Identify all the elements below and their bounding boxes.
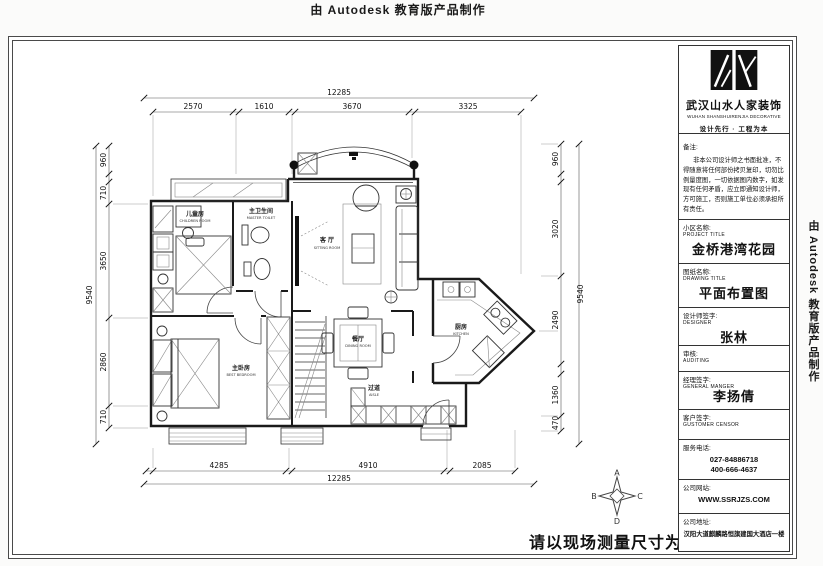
rug-icon [343,204,381,284]
compass-east-label: C [637,492,643,501]
compass-north-label: A [614,469,620,478]
balcony [290,147,419,179]
svg-text:2490: 2490 [551,310,560,329]
floor-plan: 12285 2570 1610 3670 3325 9540 960 71 [71,86,661,501]
company-slogan: 设计先行 · 工程为本 [683,123,785,133]
company-name: 武汉山水人家装饰 [683,97,785,113]
armchair-icon [353,185,379,211]
svg-text:710: 710 [99,186,108,201]
remarks-section: 备注: 非本公司设计师之书面批准，不得随意将任何部份拷贝复印，切勿比例量度图，一… [679,134,789,220]
svg-text:MASTER TOILET: MASTER TOILET [247,216,276,220]
door-kitchen [433,336,460,363]
compass-rose: A B C D [586,469,648,527]
chair-icon [348,307,368,318]
balcony-pillar-icon [290,161,299,170]
walls [151,179,534,426]
bathroom: 主卫生间 MASTER TOILET [242,207,281,317]
bay-window-top [171,179,286,201]
wardrobe-icon [153,340,172,406]
svg-text:3020: 3020 [551,219,560,238]
website-section: 公司网站: WWW.SSRJZS.COM [679,480,789,514]
sofa-icon [396,206,418,290]
closet-icon [267,317,290,419]
svg-text:3670: 3670 [342,102,361,111]
manager-label: 经理签字: [683,374,785,384]
side-table-lamp-icon [396,186,416,203]
sink-icon [244,259,270,280]
dimension-right: 960 3020 2490 1360 470 9540 [539,141,585,447]
plant-icon [349,152,358,160]
svg-text:12285: 12285 [327,88,351,97]
autodesk-stamp-right: 由 Autodesk 教育版产品制作 [805,220,821,450]
designer-value: 张林 [683,327,785,346]
svg-text:2085: 2085 [472,461,491,470]
svg-text:4910: 4910 [358,461,377,470]
compass-west-label: B [591,492,597,501]
toilet-icon [242,225,269,245]
wardrobe-strip-icon [153,206,173,312]
customer-section: 客户签字: GUSTOMER CENSOR [679,410,789,440]
drawing-label: 图纸名称: [683,266,785,276]
svg-text:DINING ROOM: DINING ROOM [345,344,370,348]
svg-text:470: 470 [551,416,560,431]
svg-text:4285: 4285 [209,461,228,470]
remarks-text: 非本公司设计师之书面批准，不得随意将任何部份拷贝复印，切勿比例量度图，一切依据图… [683,156,785,215]
coffee-table-icon [352,234,374,263]
auditing-label: 审核: [683,348,785,358]
customer-label: 客户签字: [683,412,785,422]
phone-number-2: 400-666-4637 [683,465,785,474]
dining-table-icon [334,319,382,367]
children-bed-icon [176,236,231,294]
customer-label-en: GUSTOMER CENSOR [683,422,785,428]
svg-text:CHILDREN ROOM: CHILDREN ROOM [180,219,211,223]
company-logo-icon [709,50,759,90]
stove-icon [484,301,517,334]
svg-text:3650: 3650 [99,251,108,270]
project-label: 小区名称: [683,222,785,232]
compass-south-label: D [614,517,620,526]
svg-text:960: 960 [551,152,560,167]
svg-text:BEST BEDROOM: BEST BEDROOM [226,373,255,377]
svg-text:客 厅: 客 厅 [319,236,334,244]
floor-lamp-icon [385,291,397,303]
phone-section: 服务电话: 027-84886718 400-666-4637 [679,440,789,480]
address-label: 公司地址: [683,516,785,526]
kitchen-sink-icon [443,282,475,297]
svg-text:1360: 1360 [551,385,560,404]
designer-label: 设计师签字: [683,310,785,320]
company-header: 武汉山水人家装饰 WUHAN SHANSHUIRENJIA DECORATIVE… [679,46,789,134]
nightstand-icon [157,326,167,336]
door-bathroom [255,291,281,317]
title-block: 武汉山水人家装饰 WUHAN SHANSHUIRENJIA DECORATIVE… [678,45,790,552]
balcony-pillar-icon [410,161,419,170]
master-bedroom: 主卧房 BEST BEDROOM [153,317,290,421]
dimension-bottom: 4285 4910 2085 12285 [141,430,537,487]
drawing-frame: 12285 2570 1610 3670 3325 9540 960 71 [8,36,797,559]
living-room: 客 厅 SITTING ROOM [295,185,418,303]
drawing-section: 图纸名称: DRAWING TITLE 平面布置图 [679,264,789,308]
shoe-cabinet-icon [351,388,456,424]
autodesk-stamp-top: 由 Autodesk 教育版产品制作 [0,1,796,18]
svg-text:3325: 3325 [458,102,477,111]
designer-section: 设计师签字: DESIGNER 张林 [679,308,789,346]
svg-text:710: 710 [99,410,108,425]
chair-icon [322,333,333,353]
svg-text:主卧房: 主卧房 [232,364,250,372]
master-bed-icon [171,339,219,408]
dining-room: 餐厅 DINING ROOM 过道 AISLE [322,307,456,424]
bay-window-master [169,428,246,444]
svg-text:厨房: 厨房 [455,323,467,331]
phone-number-1: 027-84886718 [683,455,785,464]
dimension-left: 9540 960 710 3650 2860 710 [85,143,148,447]
nightstand-icon [157,411,167,421]
phone-label: 服务电话: [683,442,785,452]
kitchen: 厨房 KITCHEN [433,282,520,375]
drawing-value: 平面布置图 [683,283,785,302]
door-children [207,287,233,313]
project-value: 金桥港湾花园 [683,239,785,258]
staircase-icon [295,316,326,418]
manager-section: 经理签字: GENERAL MANGER 李扬倩 [679,372,789,410]
svg-text:儿童房: 儿童房 [185,210,204,218]
project-section: 小区名称: PROJECT TITLE 金桥港湾花园 [679,220,789,264]
chair-icon [348,368,368,379]
project-label-en: PROJECT TITLE [683,232,785,238]
children-room: 儿童房 CHILDREN ROOM [153,206,233,313]
auditing-section: 审核: AUDITING [679,346,789,372]
website-label: 公司网站: [683,482,785,492]
svg-text:2570: 2570 [183,102,202,111]
drawing-label-en: DRAWING TITLE [683,276,785,282]
company-name-en: WUHAN SHANSHUIRENJIA DECORATIVE [683,114,785,119]
address-section: 公司地址: 汉阳大道麒麟路恒旗建国大酒店一楼 [679,514,789,551]
svg-text:9540: 9540 [85,285,94,304]
svg-text:SITTING ROOM: SITTING ROOM [314,246,341,250]
chair-icon [383,333,394,353]
svg-text:KITCHEN: KITCHEN [453,332,469,336]
svg-text:AISLE: AISLE [369,393,380,397]
remarks-label: 备注: [683,144,698,151]
svg-text:12285: 12285 [327,474,351,483]
website-value: WWW.SSRJZS.COM [683,495,785,504]
svg-text:主卫生间: 主卫生间 [249,207,273,215]
svg-text:2860: 2860 [99,352,108,371]
washing-machine-icon [298,153,317,174]
svg-text:过道: 过道 [368,384,380,392]
svg-text:餐厅: 餐厅 [351,335,364,343]
address-value: 汉阳大道麒麟路恒旗建国大酒店一楼 [683,529,785,538]
tv-icon [295,216,299,286]
svg-text:9540: 9540 [576,284,585,303]
door-entry [423,400,449,426]
svg-text:960: 960 [99,153,108,168]
bay-window-stair [281,428,323,444]
designer-label-en: DESIGNER [683,320,785,326]
door-master [235,318,261,344]
svg-text:1610: 1610 [254,102,273,111]
auditing-label-en: AUDITING [683,358,785,364]
